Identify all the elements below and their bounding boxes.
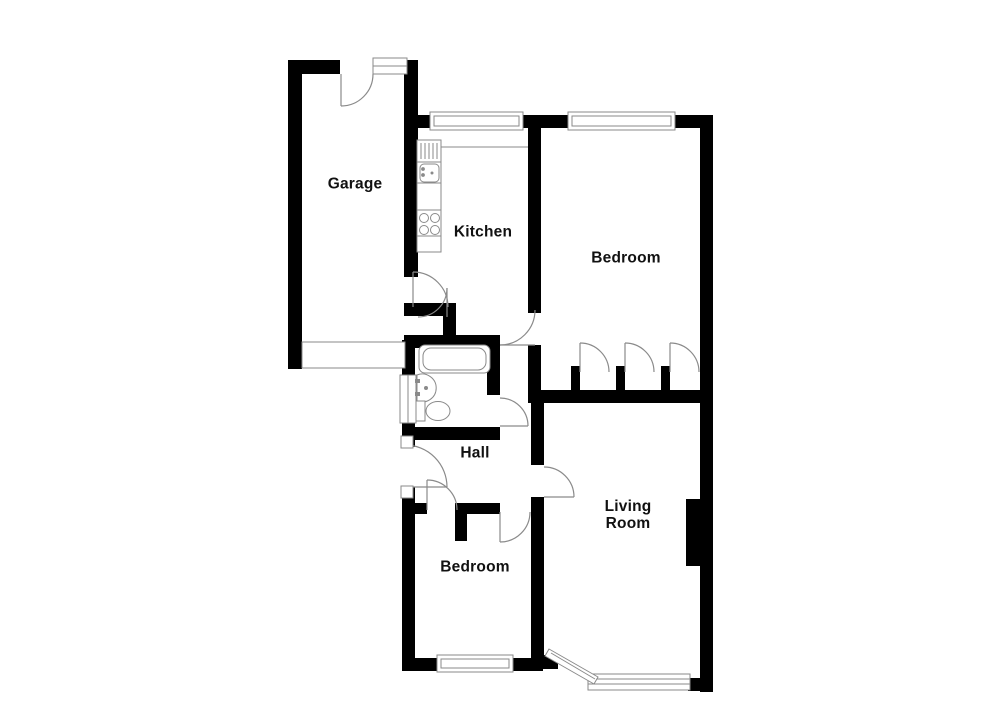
garage-door bbox=[302, 342, 405, 368]
chimney-breast bbox=[686, 499, 703, 566]
bedroom1-label: Bedroom bbox=[591, 250, 660, 267]
floor-plan: Garage Kitchen Bedroom Hall Living Room … bbox=[0, 0, 1000, 727]
living-room-door-swing bbox=[544, 467, 574, 497]
walls bbox=[288, 60, 713, 692]
bathroom-door-swing bbox=[500, 398, 528, 426]
bedroom2-label: Bedroom bbox=[440, 559, 509, 576]
bedroom2-door-swing bbox=[500, 512, 530, 542]
bedroom2-window bbox=[437, 655, 513, 672]
hall-label: Hall bbox=[460, 445, 489, 462]
garage-window bbox=[373, 58, 407, 74]
hall-closet-door-swing bbox=[427, 480, 457, 510]
garage-label: Garage bbox=[328, 176, 383, 193]
bay-window bbox=[545, 649, 690, 690]
doors bbox=[341, 74, 699, 542]
kitchen-window bbox=[430, 112, 523, 130]
bedroom1-window bbox=[568, 112, 675, 130]
living-room-label: Living Room bbox=[605, 498, 652, 532]
front-door-swing bbox=[405, 445, 447, 487]
kitchen-label: Kitchen bbox=[454, 224, 512, 241]
floor-plan-drawing bbox=[0, 0, 1000, 727]
bathtub bbox=[419, 345, 490, 373]
kitchen-door-swing bbox=[413, 272, 448, 307]
front-door-jambs bbox=[401, 436, 413, 498]
garage-door-swing bbox=[341, 74, 373, 106]
toilet bbox=[416, 401, 450, 421]
wardrobe-door-swings bbox=[580, 343, 699, 372]
bedroom1-door-swing bbox=[500, 310, 535, 345]
bathroom-window bbox=[400, 375, 416, 423]
washbasin bbox=[415, 374, 436, 402]
